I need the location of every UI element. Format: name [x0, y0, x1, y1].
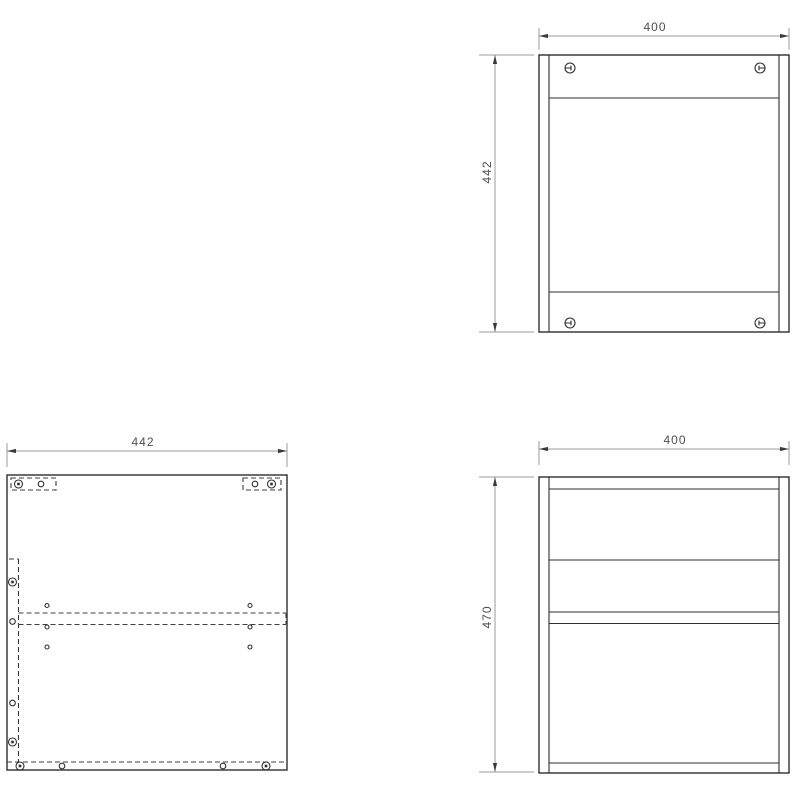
cam-screw-icon — [565, 318, 575, 328]
arrowhead-icon — [780, 447, 789, 451]
dimension-label: 470 — [480, 605, 494, 628]
screw-slot — [565, 66, 571, 71]
top-view-outline — [539, 55, 789, 332]
pin-hole-icon — [248, 604, 252, 608]
cam-screw-icon — [755, 318, 765, 328]
screw-slot — [759, 321, 765, 326]
dowel-hole-icon — [38, 481, 44, 487]
pin-hole-icon — [45, 604, 49, 608]
drawing-canvas: 400 442 442 — [0, 0, 800, 800]
cam-screw-icon — [565, 63, 575, 73]
front-view-outline — [539, 477, 789, 773]
top-view: 400 442 — [479, 20, 789, 332]
cam-core — [270, 483, 273, 486]
side-panel-view: 442 — [7, 435, 287, 770]
arrowhead-icon — [493, 763, 497, 772]
front-view-width-dimension: 400 — [539, 433, 789, 465]
dowel-hole-icon — [220, 763, 226, 769]
pin-hole-icon — [248, 645, 252, 649]
arrowhead-icon — [7, 449, 16, 453]
screw-slot — [759, 66, 765, 71]
dimension-label: 442 — [480, 160, 494, 183]
dimension-label: 400 — [643, 20, 666, 34]
cam-core — [265, 765, 268, 768]
dowel-hole-icon — [252, 481, 258, 487]
cam-lock-icon — [268, 480, 276, 488]
cam-screw-icon — [755, 63, 765, 73]
cam-lock-icon — [9, 738, 17, 746]
cam-lock-icon — [262, 762, 270, 770]
pin-hole-icon — [45, 645, 49, 649]
cam-core — [17, 483, 20, 486]
arrowhead-icon — [539, 34, 548, 38]
top-view-depth-dimension: 442 — [479, 55, 534, 332]
pin-hole-icon — [248, 625, 252, 629]
cam-lock-icon — [9, 578, 17, 586]
arrowhead-icon — [493, 55, 497, 64]
dowel-hole-icon — [59, 763, 65, 769]
arrowhead-icon — [278, 449, 287, 453]
arrowhead-icon — [493, 323, 497, 332]
front-view: 400 470 — [479, 433, 789, 773]
technical-drawing: 400 442 442 — [0, 0, 800, 800]
arrowhead-icon — [780, 34, 789, 38]
pin-hole-icon — [45, 625, 49, 629]
dimension-label: 442 — [131, 435, 154, 449]
cam-lock-icon — [15, 480, 23, 488]
dimension-label: 400 — [663, 433, 686, 447]
arrowhead-icon — [493, 477, 497, 486]
side-view-depth-dimension: 442 — [7, 435, 287, 467]
dowel-hole-icon — [10, 700, 16, 706]
arrowhead-icon — [539, 447, 548, 451]
front-view-height-dimension: 470 — [479, 477, 534, 772]
top-view-width-dimension: 400 — [539, 20, 789, 50]
side-panel-outline — [7, 475, 287, 770]
cam-core — [11, 741, 14, 744]
cam-lock-icon — [16, 762, 24, 770]
cam-core — [11, 581, 14, 584]
dowel-hole-icon — [10, 619, 16, 625]
cam-core — [19, 765, 22, 768]
screw-slot — [565, 321, 571, 326]
